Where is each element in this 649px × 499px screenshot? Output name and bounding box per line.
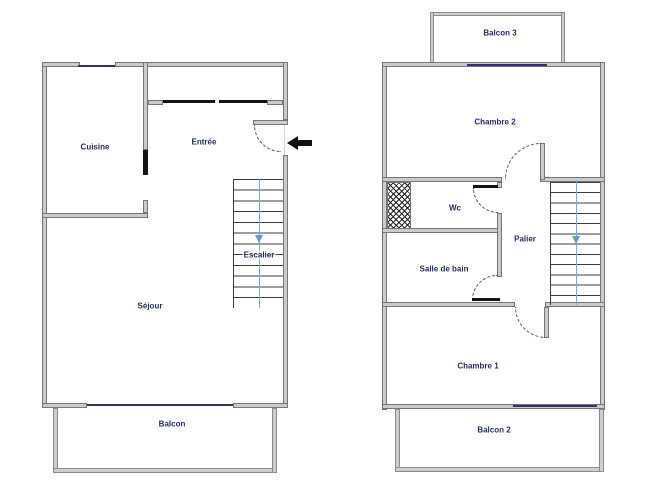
f2-sdb-door-leaf [472,298,500,301]
f1-cuisine-door-panel [143,150,148,175]
entrance-arrow-icon [287,136,313,150]
stair-down-arrow-icon [255,235,263,243]
f2-chambre1-door-swing-arc [515,307,546,338]
f2-wall-left [382,62,387,410]
duct-shaft-hatch [387,182,411,230]
f2-staircase [550,182,600,305]
f1-sejour-window [87,404,233,406]
room-label-sejour: Séjour [138,302,163,311]
f1-closet-stub-left [148,100,163,105]
room-label-cuisine: Cuisine [81,143,110,152]
f1-cuisine-wall-right-b [143,200,148,213]
room-label-wc: Wc [449,204,461,213]
f1-cuisine-wall-right-a [143,62,148,150]
f2-balcony3-wall-right [561,12,565,67]
room-label-balcon3: Balcon 3 [483,29,516,38]
f2-balcony2-wall-right [599,409,604,472]
room-label-balcon2: Balcon 2 [477,426,510,435]
f1-wall-top-b [115,62,288,67]
room-label-escalier: Escalier [243,251,276,260]
f2-sdb-door-swing-arc [472,275,497,300]
f2-chambre2-window [467,64,547,66]
f1-closet-stub-right [267,100,283,105]
f1-cuisine-wall-bottom [42,213,148,218]
room-label-chambre2: Chambre 2 [474,118,515,127]
f2-balcony2-wall-bottom [395,467,604,472]
f2-wc-door-swing-arc [473,188,498,213]
f1-balcony-wall-right [272,408,277,473]
f2-sdb-wall-bottom-a [382,302,515,307]
floor-plan-canvas: Cuisine Entrée Séjour Escalier Balcon [0,0,649,499]
f1-wall-bottom-a [42,403,87,408]
f2-wc-wall-right-b [497,213,502,277]
f2-chambre1-window [513,405,597,407]
f2-balcony3-wall-left [430,12,434,67]
f2-balcony3-wall-top [430,12,565,16]
room-label-entree: Entrée [192,138,217,147]
room-label-balcon: Balcon [159,420,186,429]
f1-stair-guide-line [259,179,260,308]
f2-wall-right [600,62,605,410]
f2-wc-wall-bottom [382,228,502,233]
f1-balcony-wall-bottom [53,468,277,473]
f2-chambre2-door-swing-arc [505,143,541,179]
f1-wall-right-upper [283,62,288,120]
f1-wall-bottom-b [233,403,288,408]
f1-balcony-wall-left [53,408,58,473]
entrance-arrow-shaft [297,140,312,146]
stair-down-arrow-icon [572,236,580,244]
f1-entrance-door-line [284,125,285,155]
f1-wall-left [42,62,47,408]
room-label-palier: Palier [514,235,536,244]
f2-balcony2-wall-left [395,409,400,472]
f1-wall-right-lower [283,155,288,408]
room-label-chambre1: Chambre 1 [457,362,498,371]
f1-closet-door-1 [163,100,215,103]
room-label-salle-de-bain: Salle de bain [420,265,469,274]
f1-staircase [233,179,283,308]
f1-wall-top-a [42,62,80,67]
f1-entrance-door-swing-arc [254,125,281,152]
f1-closet-door-2 [219,100,267,103]
f1-cuisine-window [78,65,115,67]
